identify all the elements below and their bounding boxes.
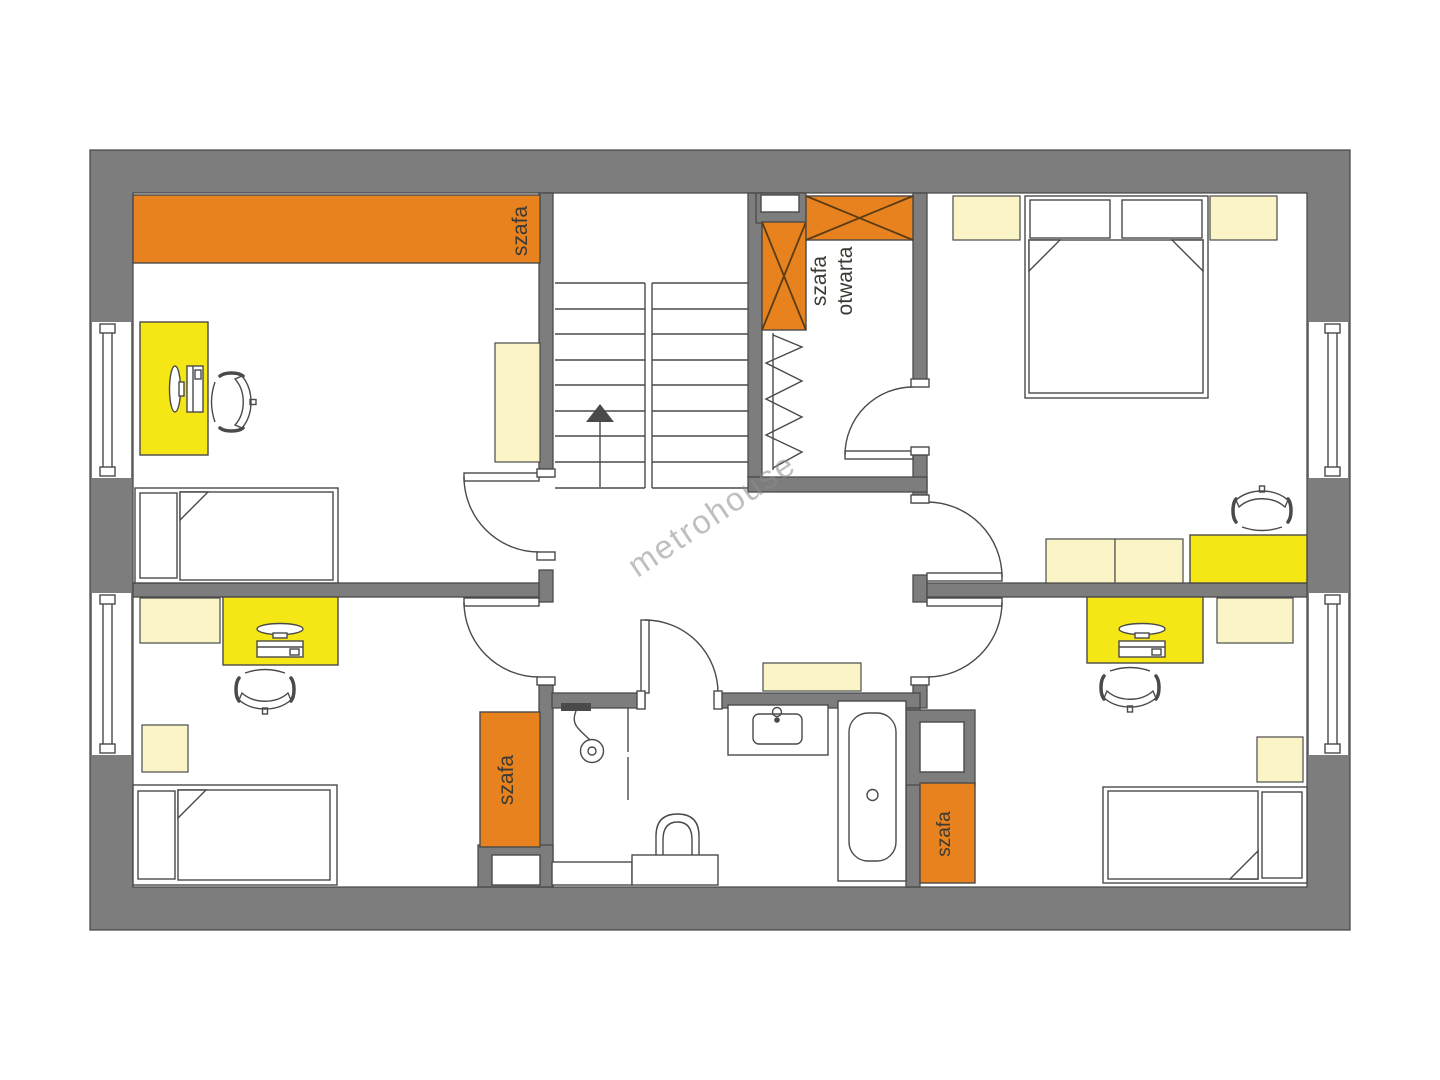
floor-plan-drawing: szafa otwarta szafa szafa: [0, 0, 1440, 1080]
cabinet-top: [140, 598, 220, 643]
dresser-right: [1115, 539, 1183, 583]
open-wardrobe-label-line1: szafa: [808, 256, 831, 307]
bathtub-icon: [838, 701, 906, 881]
cabinet-side: [142, 725, 188, 772]
watermark: metrohouse: [621, 445, 803, 584]
door-top-right-room: [927, 502, 1002, 581]
single-bed-bottom-left: [133, 785, 337, 885]
desk-chair: [236, 670, 294, 715]
desk-chair: [1101, 668, 1159, 713]
door-top-left-room: [464, 473, 539, 552]
double-bed: [1025, 196, 1208, 398]
stair-direction-arrow: [586, 404, 614, 487]
room-bottom-right: szafa: [920, 597, 1307, 883]
window-left-top: [92, 322, 131, 478]
washbasin-icon: [728, 705, 828, 755]
stair-treads: [555, 283, 748, 488]
wardrobe-top-left-label: szafa: [509, 206, 532, 257]
room-top-right: [953, 196, 1307, 583]
bath-step-left: [552, 862, 632, 885]
floor-plan-page: szafa otwarta szafa szafa: [0, 0, 1440, 1080]
cabinet-top: [1217, 598, 1293, 643]
staircase: [555, 283, 748, 488]
nightstand-right: [1210, 196, 1277, 240]
wardrobe-top-left: [133, 195, 540, 263]
window-right-top: [1309, 322, 1348, 478]
door-jambs: [537, 379, 929, 709]
window-right-bottom: [1309, 593, 1348, 755]
open-wardrobe-label-line2: otwarta: [834, 246, 857, 315]
desk-top-right: [1190, 535, 1307, 583]
bathroom: [552, 701, 906, 885]
cabinet-near-stairs: [495, 343, 540, 462]
cabinet-side: [1257, 737, 1303, 782]
nightstand-left: [953, 196, 1020, 240]
dresser-left: [1046, 539, 1115, 583]
shower-icon: [561, 703, 604, 763]
window-left-bottom: [92, 593, 131, 755]
door-bottom-left-room: [464, 598, 539, 677]
bath-step-right: [632, 855, 718, 885]
door-bottom-right-room: [927, 598, 1002, 677]
single-bed-bottom-right: [1103, 787, 1307, 883]
door-bathroom: [641, 620, 718, 693]
single-bed-top-left: [135, 488, 338, 583]
desk-chair: [1233, 486, 1291, 531]
hall-sideboard: [763, 663, 861, 691]
door-closet: [845, 387, 913, 459]
hallway: [763, 663, 861, 691]
room-top-left: szafa: [133, 195, 540, 583]
walk-in-closet: szafa otwarta: [762, 196, 913, 470]
desk-chair: [212, 373, 257, 431]
room-bottom-left: szafa: [133, 597, 540, 885]
wardrobe-bottom-left-label: szafa: [495, 755, 518, 806]
wardrobe-bottom-right-label: szafa: [934, 811, 955, 857]
